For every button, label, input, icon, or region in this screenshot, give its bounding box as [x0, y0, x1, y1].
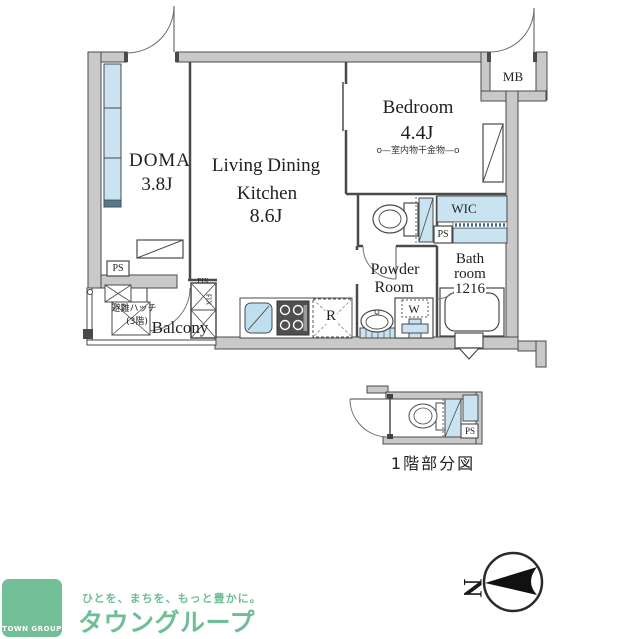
entrance-door	[127, 6, 174, 53]
powder-label-1: Powder	[371, 262, 420, 278]
bedroom-wardrobe	[483, 124, 503, 182]
ps-label-subplan: PS	[465, 427, 475, 436]
doma-size-label: 3.8J	[141, 175, 172, 194]
bedroom-room-label: Bedroom	[383, 98, 454, 117]
ldk-size-label: 8.6J	[250, 206, 283, 226]
doma-room-label: DOMA	[129, 151, 191, 170]
mb-door	[490, 8, 534, 52]
bedroom-size-label: 4.4J	[401, 123, 434, 143]
wic-label: WIC	[451, 202, 476, 215]
town-group-logo: TOWN GROUP	[2, 579, 62, 637]
balcony-label: Balcony	[152, 319, 209, 336]
subplan-toilet	[409, 403, 446, 430]
washer-label: W	[408, 303, 419, 315]
bath-label-1: Bath	[455, 252, 485, 267]
vent-step	[455, 333, 483, 359]
mb-label: MB	[503, 70, 523, 83]
town-group-logo-text: TOWN GROUP	[2, 625, 62, 633]
ps-label-right: PS	[437, 230, 448, 240]
balcony-drain	[83, 329, 93, 339]
fix-label-side: FIX	[205, 294, 212, 305]
subplan-1f	[350, 386, 482, 444]
hatch-label-1: 避難ハッチ	[111, 305, 156, 314]
fix-label-top: FIX	[197, 278, 208, 285]
stove	[277, 301, 309, 335]
ps-label-left: PS	[112, 264, 123, 274]
floorplan-drawing	[0, 0, 640, 639]
bath-label-3: 1216	[454, 282, 486, 297]
compass	[484, 553, 542, 611]
subplan-caption: 1階部分図	[391, 456, 475, 472]
toilet-fixture	[373, 203, 418, 236]
ldk-room-label-1: Living Dining	[212, 156, 320, 175]
bath-label-2: room	[453, 267, 487, 282]
wall-pipe	[88, 290, 93, 295]
floorplan-page: DOMA 3.8J Living Dining Kitchen 8.6J Bed…	[0, 0, 640, 639]
doma-counter	[137, 240, 183, 258]
fridge-label: R	[325, 309, 337, 324]
powder-label-2: Room	[374, 280, 413, 296]
outdoor-unit	[105, 285, 131, 302]
wash-basin	[361, 310, 393, 332]
entrance-storage	[104, 64, 121, 207]
subplan-door-arc	[350, 399, 388, 437]
brand-company-name: タウングループ	[78, 603, 255, 639]
bedroom-drying-note: o—室内物干金物—o	[376, 147, 459, 156]
hatch-label-2: (3階)	[126, 318, 148, 327]
compass-north-letter: N	[459, 574, 487, 602]
ldk-room-label-2: Kitchen	[237, 184, 297, 203]
